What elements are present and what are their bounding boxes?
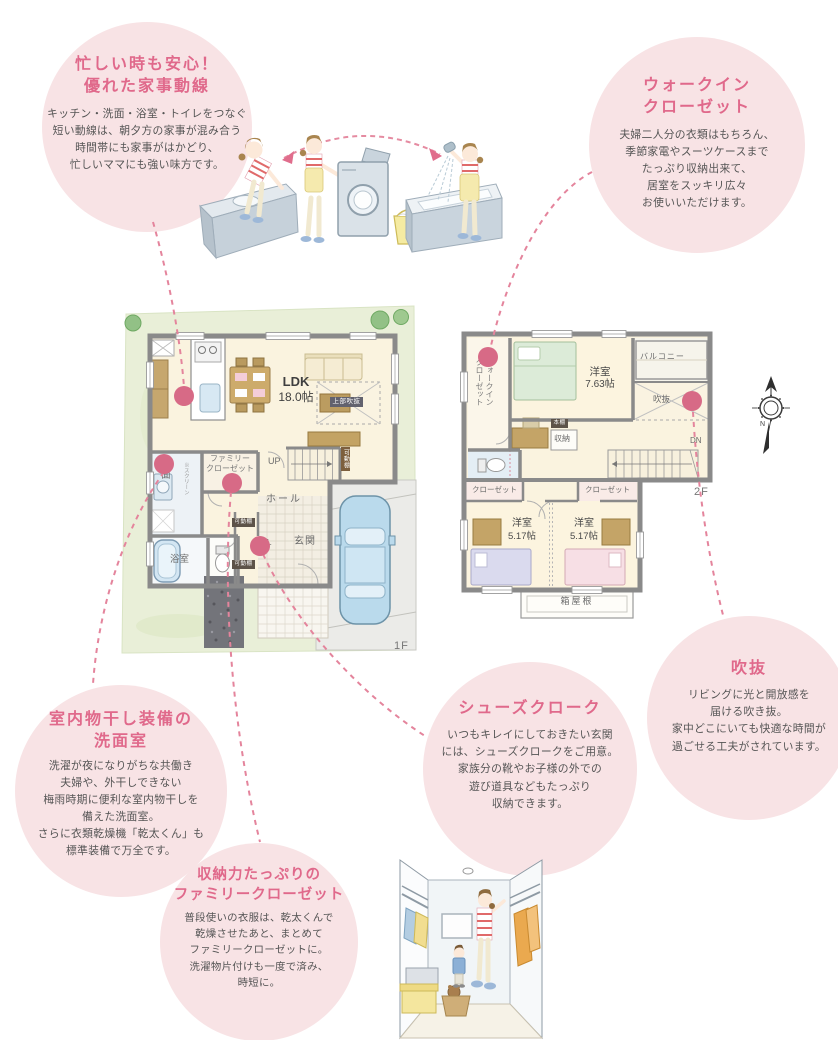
callout-title: 吹抜 xyxy=(647,658,838,680)
child-figure xyxy=(453,945,465,988)
bedroom-main-label: 洋室 7.63帖 xyxy=(568,366,632,392)
movable-shelf-label: 可動棚 xyxy=(341,447,350,471)
callout-body: いつもキレイにしておきたい玄関 には、シューズクロークをご用意。 家族分の靴やお… xyxy=(423,727,637,812)
bookshelf-chip: 本棚 xyxy=(551,419,568,428)
storage-label: 収納 xyxy=(554,434,570,444)
flyer-page: 忙しい時も安心！ 優れた家事動線 キッチン・洗面・浴室・トイレをつなぐ 短い動線… xyxy=(0,0,838,1040)
title-line: 優れた家事動線 xyxy=(42,76,252,98)
genkan-label: 玄関 xyxy=(294,536,316,549)
hall-label: ホール xyxy=(266,494,302,507)
callout-body: 洗濯が夜になりがちな共働き 夫婦や、外干しできない 梅雨時期に便利な室内物干しを… xyxy=(15,758,227,860)
callout-title: ウォークイン クローゼット xyxy=(589,75,805,120)
title-line: 忙しい時も安心！ xyxy=(42,54,252,76)
pantry-icon xyxy=(152,340,174,356)
bath-mat-icon xyxy=(152,510,174,532)
stairs-up xyxy=(288,448,340,480)
tv-board-icon xyxy=(308,432,360,446)
up-label: UP xyxy=(268,456,281,467)
toilet-2f-icon xyxy=(478,459,505,473)
closet-label: クローゼット xyxy=(467,485,522,494)
storage-boxes xyxy=(400,968,438,1013)
toilet-icon xyxy=(216,546,230,572)
floor-tag-2f: 2F xyxy=(694,486,709,498)
floor-plan-1f: LDK 18.0帖 上部吹抜 UP 可動棚 洗面 ※スクリーン 浴室 ファミリー… xyxy=(118,296,422,664)
movable-shelf-chip: 可動棚 xyxy=(232,518,255,527)
callout-void: 吹抜 リビングに光と開放感を 届ける吹き抜。 家中どこにいても快適な時間が 過ご… xyxy=(647,616,838,820)
compass-rose: N xyxy=(738,366,804,458)
bedroom-left-label: 洋室 5.17帖 xyxy=(496,518,548,542)
callout-shoes-cloak: シューズクローク いつもキレイにしておきたい玄関 には、シューズクロークをご用意… xyxy=(423,662,637,876)
family-closet-label: ファミリー クローゼット xyxy=(202,454,258,474)
box-roof-label: 箱屋根 xyxy=(549,596,605,607)
closet-label: クローゼット xyxy=(579,485,636,494)
callout-title: 忙しい時も安心！ 優れた家事動線 xyxy=(42,54,252,99)
laundry-illustration xyxy=(198,110,504,268)
senmen-label: 洗面 xyxy=(158,460,170,479)
void-area-2f xyxy=(633,382,710,420)
stairs-down xyxy=(608,450,698,478)
compass-icon xyxy=(752,376,790,454)
callout-title: 室内物干し装備の 洗面室 xyxy=(15,709,227,754)
dn-label: DN xyxy=(690,436,702,446)
kitchen-counter xyxy=(191,338,225,420)
washing-machine-icon xyxy=(338,148,390,236)
floor-tag-1f: 1F xyxy=(394,640,409,652)
callout-walkin-closet: ウォークイン クローゼット 夫婦二人分の衣類はもちろん、 季節家電やスーツケース… xyxy=(589,37,805,253)
bed-lavender-icon xyxy=(471,549,531,585)
north-label: N xyxy=(760,421,765,430)
closet-illustration xyxy=(396,856,546,1040)
ldk-label: LDK 18.0帖 xyxy=(264,374,328,405)
woman-washer-figure xyxy=(300,135,340,243)
scl-label: SCL xyxy=(255,537,272,548)
screen-note-label: ※スクリーン xyxy=(182,462,189,495)
bathtub-icon xyxy=(406,184,502,252)
movable-shelf-chip: 可動棚 xyxy=(232,560,255,569)
bedroom-right-label: 洋室 5.17帖 xyxy=(558,518,610,542)
callout-body: リビングに光と開放感を 届ける吹き抜。 家中どこにいても快適な時間が 過ごせる工… xyxy=(647,687,838,755)
void-above-chip: 上部吹抜 xyxy=(330,397,363,407)
bed-main-icon xyxy=(514,342,576,400)
walkin-closet-label: ウォークイン クローゼット xyxy=(474,358,494,458)
bed-pink-icon xyxy=(565,549,625,585)
void-label: 吹抜 xyxy=(653,394,670,405)
callout-body: 夫婦二人分の衣類はもちろん、 季節家電やスーツケースまで たっぷり収納出来て、 … xyxy=(589,127,805,212)
balcony-label: バルコニー xyxy=(640,352,685,362)
callout-body: 普段使いの衣服は、乾太くんで 乾燥させたあと、まとめて ファミリークローゼットに… xyxy=(160,911,358,993)
callout-title: 収納力たっぷりの ファミリークローゼット xyxy=(160,865,358,906)
car-icon xyxy=(335,496,395,624)
callout-title: シューズクローク xyxy=(423,698,637,720)
callout-family-closet: 収納力たっぷりの ファミリークローゼット 普段使いの衣服は、乾太くんで 乾燥させ… xyxy=(160,843,358,1040)
bathroom-label: 浴室 xyxy=(170,554,189,566)
floor-plan-2f: ウォークイン クローゼット 洋室 7.63帖 バルコニー 吹抜 本棚 収納 DN… xyxy=(452,322,720,624)
